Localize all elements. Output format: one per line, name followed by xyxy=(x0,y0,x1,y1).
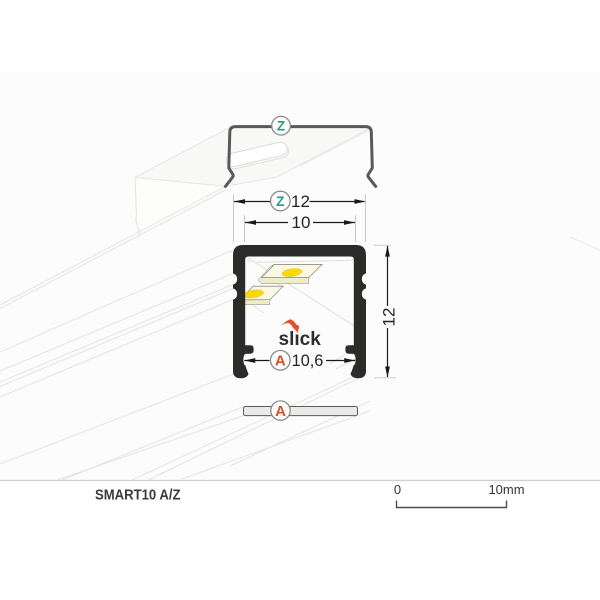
svg-text:A: A xyxy=(275,403,286,420)
svg-text:12: 12 xyxy=(291,192,310,211)
svg-text:A: A xyxy=(275,353,286,370)
svg-text:Z: Z xyxy=(276,194,284,209)
svg-text:slıck: slıck xyxy=(279,329,322,350)
svg-text:SMART10 A/Z: SMART10 A/Z xyxy=(95,487,181,504)
svg-text:10,6: 10,6 xyxy=(292,352,324,370)
svg-text:12: 12 xyxy=(380,308,399,327)
svg-text:10: 10 xyxy=(292,213,311,232)
svg-text:10mm: 10mm xyxy=(488,482,524,497)
svg-text:0: 0 xyxy=(394,482,401,497)
svg-text:Z: Z xyxy=(277,119,285,134)
